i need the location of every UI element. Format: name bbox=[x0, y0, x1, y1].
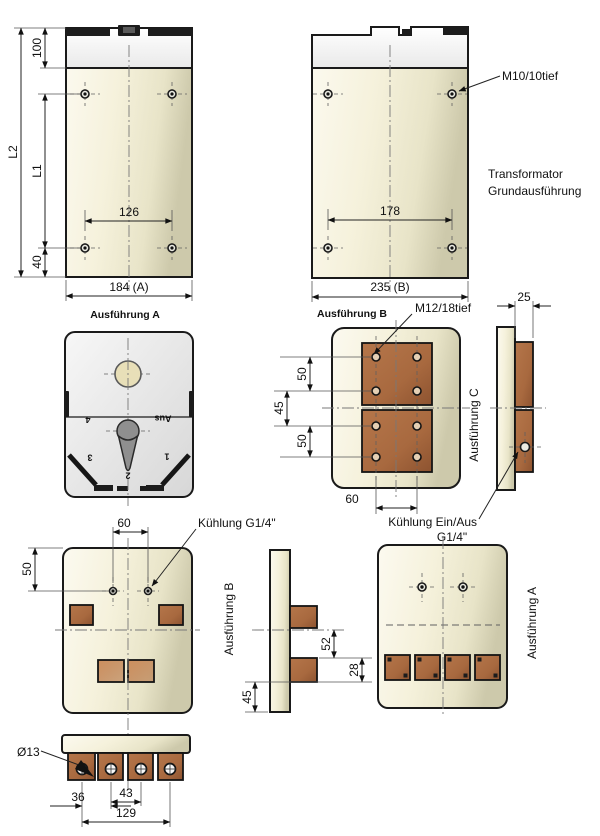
terminal-bottom-2 bbox=[128, 660, 154, 682]
technical-drawing-transformer: L2 100 L1 40 126 184 (A) Ausführung A bbox=[0, 0, 600, 836]
switch-pos-3: 3 bbox=[87, 453, 92, 463]
bus-bar-upper bbox=[362, 343, 432, 405]
switch-top-view: 4 Aus 3 1 2 bbox=[65, 332, 194, 506]
bottom-strip-view: Ø13 36 43 129 bbox=[17, 735, 190, 827]
lug-upper bbox=[290, 606, 317, 628]
dim-l1: L1 bbox=[30, 164, 44, 178]
dim-52: 52 bbox=[319, 637, 333, 651]
label-ausfuehrung-a: Ausführung A bbox=[525, 587, 539, 659]
side-panel-c bbox=[497, 327, 515, 490]
terminal-left bbox=[70, 605, 93, 625]
side-panel-b bbox=[270, 550, 290, 712]
annotation-transformator-1: Transformator bbox=[488, 167, 563, 181]
terminal-bottom-1 bbox=[98, 660, 124, 682]
callout-cooling-g14: Kühlung G1/4" bbox=[198, 516, 276, 530]
top-knob-inner bbox=[123, 27, 135, 33]
dim-36: 36 bbox=[71, 790, 85, 804]
switch-pos-4: 4 bbox=[85, 415, 90, 425]
side-clip-right bbox=[189, 391, 194, 417]
cooling-panel bbox=[63, 548, 192, 713]
cooling-panel-view: 60 50 Kühlung G1/4" bbox=[20, 516, 276, 713]
bus-bar-lower bbox=[362, 410, 432, 472]
callout-m12: M12/18tief bbox=[415, 301, 472, 315]
dim-100: 100 bbox=[30, 38, 44, 58]
strip-body bbox=[62, 735, 190, 753]
front-view-b: 178 235 (B) M10/10tief Transformator Gru… bbox=[312, 27, 581, 320]
top-cap-right bbox=[148, 28, 192, 36]
cooling-port bbox=[521, 443, 530, 452]
notch-block bbox=[402, 29, 411, 35]
drawing-svg: L2 100 L1 40 126 184 (A) Ausführung A bbox=[0, 0, 600, 836]
side-view-c: 25 Ausführung C bbox=[467, 290, 551, 490]
label-ausfuehrung-c: Ausführung C bbox=[467, 388, 481, 462]
bottom-view-a: Ausführung A bbox=[378, 537, 539, 715]
annotation-transformator-2: Grundausführung bbox=[488, 184, 581, 198]
switch-pos-1: 1 bbox=[164, 452, 169, 462]
dim-178: 178 bbox=[380, 204, 400, 218]
dim-129: 129 bbox=[116, 806, 136, 820]
dim-25: 25 bbox=[517, 290, 531, 304]
dim-43: 43 bbox=[119, 786, 133, 800]
switch-pos-2: 2 bbox=[125, 471, 130, 481]
callout-cooling-onoff: Kühlung Ein/Aus bbox=[388, 515, 477, 529]
bus-panel-view: 50 45 50 60 M12/18tief bbox=[272, 301, 472, 514]
bus-bar-side-lower bbox=[515, 410, 533, 472]
dim-60-cooling: 60 bbox=[117, 516, 131, 530]
front-view-a: L2 100 L1 40 126 184 (A) Ausführung A bbox=[6, 25, 192, 321]
dim-28: 28 bbox=[347, 663, 361, 677]
callout-dia13: Ø13 bbox=[17, 745, 40, 759]
dim-50-bottom: 50 bbox=[295, 434, 309, 448]
lug-lower bbox=[290, 658, 317, 682]
side-clip-left bbox=[65, 391, 70, 417]
top-cap-left bbox=[66, 28, 110, 36]
dim-126: 126 bbox=[119, 205, 139, 219]
dim-45-side: 45 bbox=[240, 690, 254, 704]
panel-a bbox=[378, 545, 507, 708]
terminal-right bbox=[159, 605, 183, 625]
dim-50-cooling: 50 bbox=[20, 562, 34, 576]
caption-ausfuehrung-b: Ausführung B bbox=[317, 308, 387, 320]
caption-ausfuehrung-a: Ausführung A bbox=[90, 309, 160, 321]
callout-m10: M10/10tief bbox=[502, 69, 559, 83]
dim-60-bus: 60 bbox=[345, 492, 359, 506]
callout-cooling-onoff-g14: G1/4" bbox=[437, 530, 467, 544]
side-view-b: 52 28 45 Ausführung B bbox=[222, 550, 372, 712]
top-cap-right-b bbox=[443, 27, 468, 35]
dim-45: 45 bbox=[272, 401, 286, 415]
dim-l2: L2 bbox=[6, 145, 20, 159]
label-ausfuehrung-b: Ausführung B bbox=[222, 583, 236, 656]
switch-pos-aus: Aus bbox=[154, 414, 171, 424]
dim-40: 40 bbox=[30, 255, 44, 269]
dim-235b: 235 (B) bbox=[370, 280, 409, 294]
dim-50-top: 50 bbox=[295, 367, 309, 381]
dim-184a: 184 (A) bbox=[109, 280, 148, 294]
bus-bar-side-upper bbox=[515, 342, 533, 407]
